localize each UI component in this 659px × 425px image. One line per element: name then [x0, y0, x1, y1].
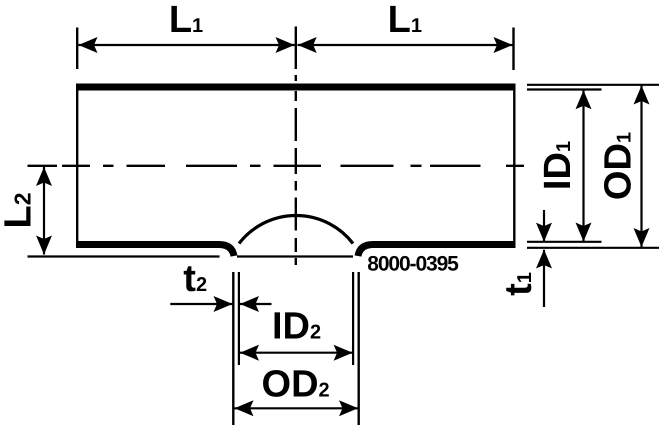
- svg-text:OD2: OD2: [262, 363, 330, 405]
- svg-text:L1: L1: [169, 0, 203, 41]
- svg-text:L2: L2: [0, 192, 40, 228]
- svg-text:ID2: ID2: [272, 306, 321, 348]
- svg-text:ID1: ID1: [537, 141, 579, 190]
- svg-text:t1: t1: [498, 272, 540, 296]
- svg-text:L1: L1: [388, 0, 422, 41]
- svg-text:OD1: OD1: [598, 132, 640, 200]
- svg-text:t2: t2: [183, 258, 207, 300]
- svg-text:8000-0395: 8000-0395: [367, 253, 459, 276]
